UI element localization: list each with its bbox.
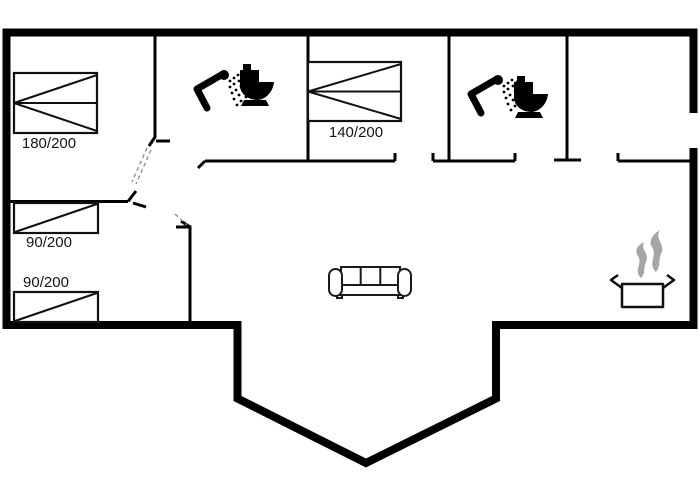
toilet-icon bbox=[240, 64, 274, 106]
steam-icon bbox=[636, 230, 662, 278]
door-swing-dashed bbox=[132, 148, 187, 225]
sofa-icon bbox=[329, 267, 411, 298]
toilet-icon bbox=[514, 76, 548, 118]
bed-size-label-90-lower: 90/200 bbox=[13, 275, 79, 291]
double-bed-icon bbox=[14, 73, 97, 133]
bed-size-label-140: 140/200 bbox=[320, 125, 392, 141]
cooking-pot-icon bbox=[611, 275, 674, 307]
floor-plan: 180/200 140/200 90/200 90/200 bbox=[0, 0, 700, 500]
single-bed-icon bbox=[14, 292, 98, 322]
bed-size-label-180: 180/200 bbox=[14, 136, 84, 152]
bed-size-label-90-upper: 90/200 bbox=[16, 235, 82, 251]
floor-plan-canvas bbox=[0, 0, 700, 500]
single-bed-icon bbox=[14, 203, 98, 233]
double-bed-icon bbox=[308, 62, 401, 121]
